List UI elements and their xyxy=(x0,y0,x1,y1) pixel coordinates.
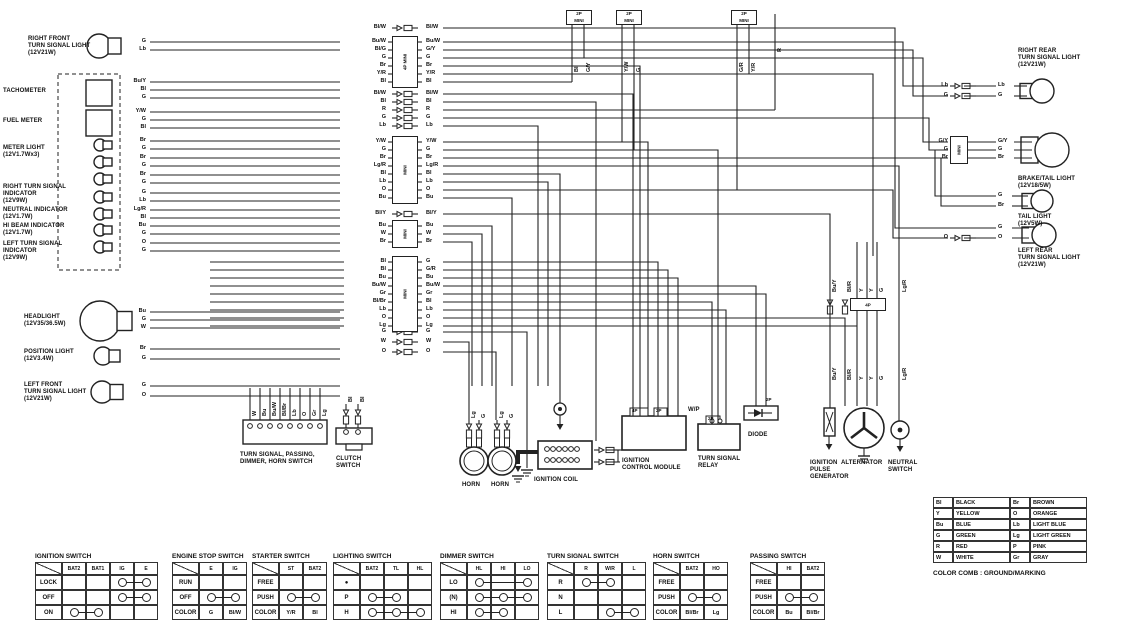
wire xyxy=(443,286,756,406)
label-icm-wp: W/P xyxy=(688,407,700,414)
position-light-bulb-icon xyxy=(109,350,120,362)
color-code-cell: Bl xyxy=(933,497,953,508)
color-code-table: BlBLACKBrBROWNYYELLOWOORANGEBuBLUELbLIGH… xyxy=(933,497,1087,563)
wire-label: G xyxy=(926,147,948,153)
table-row-label: RUN xyxy=(172,575,199,590)
table-row-label: COLOR xyxy=(750,605,777,620)
label-clutch-switch: CLUTCH SWITCH xyxy=(336,456,361,470)
table-cell xyxy=(622,575,646,590)
bullet-connector-icon xyxy=(404,25,412,30)
table-cell xyxy=(704,575,728,590)
wire-label: G/Y xyxy=(998,139,1007,145)
label-meter-light: METER LIGHT (12V1.7Wx3) xyxy=(3,145,45,159)
contact-circle-icon xyxy=(712,593,721,602)
wire-label: Y xyxy=(860,288,866,292)
wire-label: Y/R xyxy=(752,63,758,72)
wire-label: Bu/Y xyxy=(833,367,839,380)
label-horn-1: HORN xyxy=(462,482,480,489)
connector-block-label: MINI xyxy=(403,165,408,175)
table-cell xyxy=(515,590,539,605)
wire-label: G xyxy=(482,414,488,418)
table-cell xyxy=(680,590,704,605)
contact-circle-icon xyxy=(630,608,639,617)
table-cell xyxy=(801,575,825,590)
table-cell xyxy=(515,575,539,590)
table-row-label: PUSH xyxy=(653,590,680,605)
bullet-connector-icon xyxy=(404,115,412,120)
table-row-label: FREE xyxy=(252,575,279,590)
table-cell xyxy=(199,575,223,590)
wire-label: G xyxy=(426,329,430,335)
bullet-connector-icon xyxy=(494,430,499,438)
connector-block-label: 4P MINI xyxy=(403,54,408,70)
tail-light-bulb-icon xyxy=(1031,190,1053,212)
wire xyxy=(443,50,948,96)
contact-circle-icon xyxy=(142,593,151,602)
wire-label: Bl/R xyxy=(848,369,854,380)
contact-circle-icon xyxy=(118,593,127,602)
wire-label: Br xyxy=(346,63,386,69)
table-cell xyxy=(408,590,432,605)
bullet-connector-icon xyxy=(404,349,412,354)
arrow-icon xyxy=(897,446,904,452)
table-row-label: FREE xyxy=(750,575,777,590)
wire-label: Bu xyxy=(122,223,146,229)
switch-table-title: PASSING SWITCH xyxy=(750,553,806,560)
wire-label: Br xyxy=(346,239,386,245)
contact-circle-icon xyxy=(499,608,508,617)
wire-label: Br xyxy=(122,155,146,161)
table-cell xyxy=(62,575,86,590)
label-neutral-indicator: NEUTRAL INDICATOR (12V1.7W) xyxy=(3,207,68,221)
table-cell xyxy=(360,590,384,605)
table-row-label: PUSH xyxy=(252,590,279,605)
wire-label: Lb xyxy=(426,307,433,313)
contact-circle-icon xyxy=(231,593,240,602)
color-code-cell: PINK xyxy=(1030,541,1087,552)
bullet-connector-icon xyxy=(476,424,481,429)
meter-light-bulb-icon xyxy=(103,175,112,183)
label-left-front-turn-signal-light: LEFT FRONT TURN SIGNAL LIGHT (12V21W) xyxy=(24,382,86,404)
wire-label: Bl/W xyxy=(426,25,438,31)
wire-label: Gr xyxy=(426,291,432,297)
table-cell xyxy=(279,575,303,590)
wire-label: Y xyxy=(870,376,876,380)
clutch-switch-icon xyxy=(346,444,362,450)
wire-label: G xyxy=(122,95,146,101)
switch-table-title: ENGINE STOP SWITCH xyxy=(172,553,244,560)
wire-label: Bu xyxy=(426,223,433,229)
bullet-connector-icon xyxy=(955,235,960,240)
wire-label: Bu/Y xyxy=(122,79,146,85)
table-cell xyxy=(680,575,704,590)
wire-label: O xyxy=(303,412,309,416)
wire xyxy=(443,214,830,408)
table-diagonal-cell xyxy=(333,562,360,575)
indicator-bulb-icon xyxy=(103,210,112,218)
bullet-connector-icon xyxy=(404,211,412,216)
wire-label: G xyxy=(426,259,430,265)
terminal-icon xyxy=(278,424,283,429)
wire-label: G xyxy=(122,190,146,196)
table-cell xyxy=(134,575,158,590)
table-cell xyxy=(62,590,86,605)
bullet-connector-icon xyxy=(504,424,509,429)
wire-label: G xyxy=(346,115,386,121)
table-col-header: BAT2 xyxy=(62,562,86,575)
indicator-bulb-icon xyxy=(103,226,112,234)
table-cell: G xyxy=(199,605,223,620)
table-col-header: HI xyxy=(491,562,515,575)
switch-table: BAT2BAT1IGELOCKOFFON xyxy=(35,562,158,620)
wire-label: W xyxy=(253,411,259,416)
label-diode: DIODE xyxy=(748,432,768,439)
color-code-cell: Bu xyxy=(933,519,953,530)
contact-circle-icon xyxy=(606,578,615,587)
label-position-light: POSITION LIGHT (12V3.4W) xyxy=(24,349,74,363)
color-code-cell: LIGHT GREEN xyxy=(1030,530,1087,541)
table-cell xyxy=(574,575,598,590)
wire-label: G xyxy=(122,117,146,123)
bullet-connector-icon xyxy=(397,91,402,96)
table-row-label: ● xyxy=(333,575,360,590)
wire-label: Br xyxy=(426,63,432,69)
wire-label: G xyxy=(426,147,430,153)
table-cell xyxy=(622,590,646,605)
wire-label: G/Y xyxy=(587,63,593,72)
wire-label: Y/R xyxy=(426,71,435,77)
wire xyxy=(443,126,538,386)
table-cell xyxy=(86,575,110,590)
wire-label: Bl xyxy=(426,79,432,85)
wire-label: O xyxy=(426,315,430,321)
meter-light-bulb-icon xyxy=(103,158,112,166)
color-code-cell: LIGHT BLUE xyxy=(1030,519,1087,530)
wire-label: Bu/W xyxy=(426,39,440,45)
wire-label: Lg xyxy=(472,411,478,418)
contact-circle-icon xyxy=(688,593,697,602)
wire xyxy=(443,342,469,420)
spark-plug-icon xyxy=(558,407,562,411)
indicator-bulb-icon xyxy=(103,243,112,251)
indicator-bulb-icon xyxy=(103,193,112,201)
terminal-icon xyxy=(308,424,313,429)
label-headlight: HEADLIGHT (12V35/36.5W) xyxy=(24,314,66,328)
wire xyxy=(518,452,538,464)
wire-label: G xyxy=(998,225,1002,231)
connector-block-label: MINI xyxy=(957,145,962,155)
wire-label: Bu xyxy=(263,409,269,416)
wire-label: Lb xyxy=(426,179,433,185)
label-left-turn-signal-indicator: LEFT TURN SIGNAL INDICATOR (12V9W) xyxy=(3,241,62,263)
wire-label: Bu xyxy=(346,195,386,201)
wire-label: Y/W xyxy=(625,62,631,72)
table-cell xyxy=(279,590,303,605)
table-cell xyxy=(408,605,432,620)
wire-label: Lb xyxy=(346,307,386,313)
table-row-label: FREE xyxy=(653,575,680,590)
table-diagonal-cell xyxy=(252,562,279,575)
wire-label: G xyxy=(122,383,146,389)
wire-label: O xyxy=(346,315,386,321)
clutch-switch-icon xyxy=(336,428,372,444)
wire-label: W xyxy=(122,325,146,331)
terminal-icon xyxy=(495,438,500,447)
connector-pin-count: 2P xyxy=(656,409,662,414)
wire-label: G xyxy=(426,55,430,61)
wire xyxy=(443,226,492,386)
table-col-header: BAT2 xyxy=(801,562,825,575)
wire-label: G xyxy=(122,163,146,169)
table-cell xyxy=(704,590,728,605)
connector-block: 4P MINI xyxy=(392,36,418,88)
wire-label: Lb xyxy=(926,83,948,89)
contact-circle-icon xyxy=(475,578,484,587)
wire-label: G xyxy=(426,115,430,121)
wire-label: Bl xyxy=(346,99,386,105)
bullet-connector-icon xyxy=(397,339,402,344)
terminal-icon xyxy=(356,430,361,435)
bullet-connector-icon xyxy=(404,339,412,344)
color-code-cell: P xyxy=(1010,541,1030,552)
wire-label: G xyxy=(998,93,1002,99)
wire-label: Lg xyxy=(500,411,506,418)
connector-pin-count: 4P xyxy=(865,302,871,307)
table-row-label: N xyxy=(547,590,574,605)
label-right-turn-signal-indicator: RIGHT TURN SIGNAL INDICATOR (12V9W) xyxy=(3,184,66,206)
wire-label: Br xyxy=(998,155,1004,161)
contact-circle-icon xyxy=(311,593,320,602)
label-turn-signal-passing-dimmer-horn-switch: TURN SIGNAL, PASSING, DIMMER, HORN SWITC… xyxy=(240,452,315,466)
harness-connector-4p: 4P xyxy=(850,298,886,311)
terminal-icon xyxy=(258,424,263,429)
table-col-header: ST xyxy=(279,562,303,575)
table-row-label: PUSH xyxy=(750,590,777,605)
table-col-header: IG xyxy=(223,562,247,575)
arrow-icon xyxy=(557,424,564,430)
switch-table-title: STARTER SWITCH xyxy=(252,553,310,560)
wire-label: Bl xyxy=(346,259,386,265)
bullet-connector-icon xyxy=(404,99,412,104)
table-cell xyxy=(574,590,598,605)
wire xyxy=(443,310,726,424)
tachometer-icon xyxy=(86,80,112,106)
wire-label: G xyxy=(998,193,1002,199)
wire-label: Lg/R xyxy=(903,368,909,380)
wire xyxy=(443,302,712,424)
wire-label: Bu xyxy=(426,275,433,281)
table-cell xyxy=(491,605,515,620)
table-col-header: IG xyxy=(110,562,134,575)
bullet-connector-icon xyxy=(476,430,481,438)
wire-label: G xyxy=(510,414,516,418)
wire-label: Gr xyxy=(346,291,386,297)
switch-table-title: LIGHTING SWITCH xyxy=(333,553,392,560)
contact-circle-icon xyxy=(809,593,818,602)
table-col-header: BAT2 xyxy=(360,562,384,575)
table-row-label: COLOR xyxy=(653,605,680,620)
table-cell xyxy=(574,605,598,620)
connector-block-label: MINI xyxy=(403,229,408,239)
wire-label: Lg/R xyxy=(903,280,909,292)
wire-label: Bl xyxy=(349,397,355,403)
bullet-connector-icon xyxy=(842,300,847,305)
table-col-header: R xyxy=(574,562,598,575)
neutral-switch-icon xyxy=(898,428,903,433)
bullet-connector-icon xyxy=(397,211,402,216)
switch-table: RW/RLRNL xyxy=(547,562,646,620)
wire-label: R xyxy=(778,48,784,52)
table-cell xyxy=(360,605,384,620)
switch-table: HLHILOLO(N)HI xyxy=(440,562,539,620)
table-row-label: LO xyxy=(440,575,467,590)
terminal-icon xyxy=(298,424,303,429)
contact-circle-icon xyxy=(499,593,508,602)
wire xyxy=(443,118,948,150)
wire-label: Bl xyxy=(346,79,386,85)
wire-label: Lb xyxy=(122,47,146,53)
ignition-coil-icon xyxy=(538,441,592,469)
label-ignition-control-module: IGNITION CONTROL MODULE xyxy=(622,458,681,472)
contact-circle-icon xyxy=(207,593,216,602)
meter-light-bulb-icon xyxy=(103,141,112,149)
arrow-icon xyxy=(826,444,833,450)
wire-label: O xyxy=(122,240,146,246)
wire-label: Bl/Br xyxy=(283,403,289,416)
wire-label: G xyxy=(998,147,1002,153)
wire-label: O xyxy=(998,235,1002,241)
wire-label: O xyxy=(122,393,146,399)
wire-label: Bl/Br xyxy=(346,299,386,305)
label-tachometer: TACHOMETER xyxy=(3,88,46,95)
contact-circle-icon xyxy=(392,593,401,602)
wire xyxy=(443,142,648,416)
switch-table: BAT2TLHL●PH xyxy=(333,562,432,620)
contact-circle-icon xyxy=(523,578,532,587)
wire xyxy=(443,270,668,416)
color-code-cell: GREEN xyxy=(953,530,1010,541)
wire-label: Y/R xyxy=(346,71,386,77)
wire xyxy=(443,262,658,416)
bullet-connector-icon xyxy=(397,107,402,112)
wire-label: W xyxy=(346,339,386,345)
wire-label: O xyxy=(346,349,386,355)
table-row-label: COLOR xyxy=(252,605,279,620)
table-cell xyxy=(199,590,223,605)
wire-label: Br xyxy=(426,239,432,245)
wire-label: Br xyxy=(926,155,948,161)
table-cell xyxy=(303,590,327,605)
top-connector-block: 2PMINI xyxy=(566,10,592,25)
label-tail-light: TAIL LIGHT (12V5W) xyxy=(1018,214,1108,228)
wire-label: Bl xyxy=(426,299,432,305)
color-code-cell: ORANGE xyxy=(1030,508,1087,519)
table-cell: Bl/Br xyxy=(680,605,704,620)
wire-label: Bu xyxy=(346,275,386,281)
table-cell xyxy=(598,575,622,590)
table-diagonal-cell xyxy=(440,562,467,575)
wire-label: Lg/R xyxy=(346,163,386,169)
wire-label: Bl xyxy=(361,397,367,403)
label-brake-tail-light: BRAKE/TAIL LIGHT (12V18/5W) xyxy=(1018,176,1108,190)
wire-label: Br xyxy=(122,138,146,144)
table-diagonal-cell xyxy=(750,562,777,575)
wire-label: O xyxy=(426,349,430,355)
wire-label: Bu/W xyxy=(346,283,386,289)
contact-circle-icon xyxy=(606,608,615,617)
table-cell xyxy=(86,605,110,620)
color-code-cell: O xyxy=(1010,508,1030,519)
switch-table-title: DIMMER SWITCH xyxy=(440,553,494,560)
top-connector-block: 2PMINI xyxy=(731,10,757,25)
table-cell xyxy=(777,575,801,590)
table-col-header: TL xyxy=(384,562,408,575)
table-row-label: P xyxy=(333,590,360,605)
wire-label: G xyxy=(122,317,146,323)
table-cell xyxy=(110,605,134,620)
color-code-cell: GRAY xyxy=(1030,552,1087,563)
color-code-cell: G xyxy=(933,530,953,541)
color-code-cell: YELLOW xyxy=(953,508,1010,519)
switch-table-title: TURN SIGNAL SWITCH xyxy=(547,553,619,560)
wire-label: Bl/G xyxy=(346,47,386,53)
wire xyxy=(443,242,472,386)
label-left-rear-turn-signal-light: LEFT REAR TURN SIGNAL LIGHT (12V21W) xyxy=(1018,248,1108,270)
table-col-header: HI xyxy=(777,562,801,575)
connector-pin-count: 4P xyxy=(632,409,638,414)
connector-pin-count: 2P xyxy=(732,11,756,17)
bullet-connector-icon xyxy=(355,416,360,424)
bullet-connector-icon xyxy=(466,424,471,429)
switch-table: HIBAT2FREEPUSHCOLORBuBl/Br xyxy=(750,562,825,620)
wire xyxy=(443,74,873,256)
terminal-icon xyxy=(288,424,293,429)
wire-label: O xyxy=(926,235,948,241)
wire-label: Bl xyxy=(122,125,146,131)
wire-label: G xyxy=(346,147,386,153)
wire-label: Lg xyxy=(323,409,329,416)
contact-circle-icon xyxy=(392,608,401,617)
table-cell xyxy=(110,590,134,605)
table-diagonal-cell xyxy=(172,562,199,575)
contact-circle-icon xyxy=(475,608,484,617)
label-turn-signal-relay: TURN SIGNAL RELAY xyxy=(698,456,740,470)
color-code-cell: RED xyxy=(953,541,1010,552)
table-col-header: LO xyxy=(515,562,539,575)
terminal-icon xyxy=(248,424,253,429)
table-cell xyxy=(491,575,515,590)
color-code-cell: BLACK xyxy=(953,497,1010,508)
wire-label: Lb xyxy=(122,198,146,204)
brake-tail-bulb-icon xyxy=(1035,133,1069,167)
wire-label: Bu xyxy=(346,223,386,229)
wire-label: Bl xyxy=(426,171,432,177)
wire-label: Bl/Y xyxy=(426,211,437,217)
color-code-cell: BROWN xyxy=(1030,497,1087,508)
wire-label: G/Y xyxy=(926,139,948,145)
table-diagonal-cell xyxy=(653,562,680,575)
connector-block-label: MINI xyxy=(403,289,408,299)
table-row-label: (N) xyxy=(440,590,467,605)
color-code-cell: Y xyxy=(933,508,953,519)
table-col-header: BAT2 xyxy=(303,562,327,575)
connector-type-label: MINI xyxy=(567,18,591,24)
wire-label: Lb xyxy=(426,123,433,129)
wire-label: W xyxy=(426,231,431,237)
label-right-front-turn-signal-light: RIGHT FRONT TURN SIGNAL LIGHT (12V21W) xyxy=(28,36,110,58)
table-cell xyxy=(360,575,384,590)
connector-type-label: MINI xyxy=(617,18,641,24)
